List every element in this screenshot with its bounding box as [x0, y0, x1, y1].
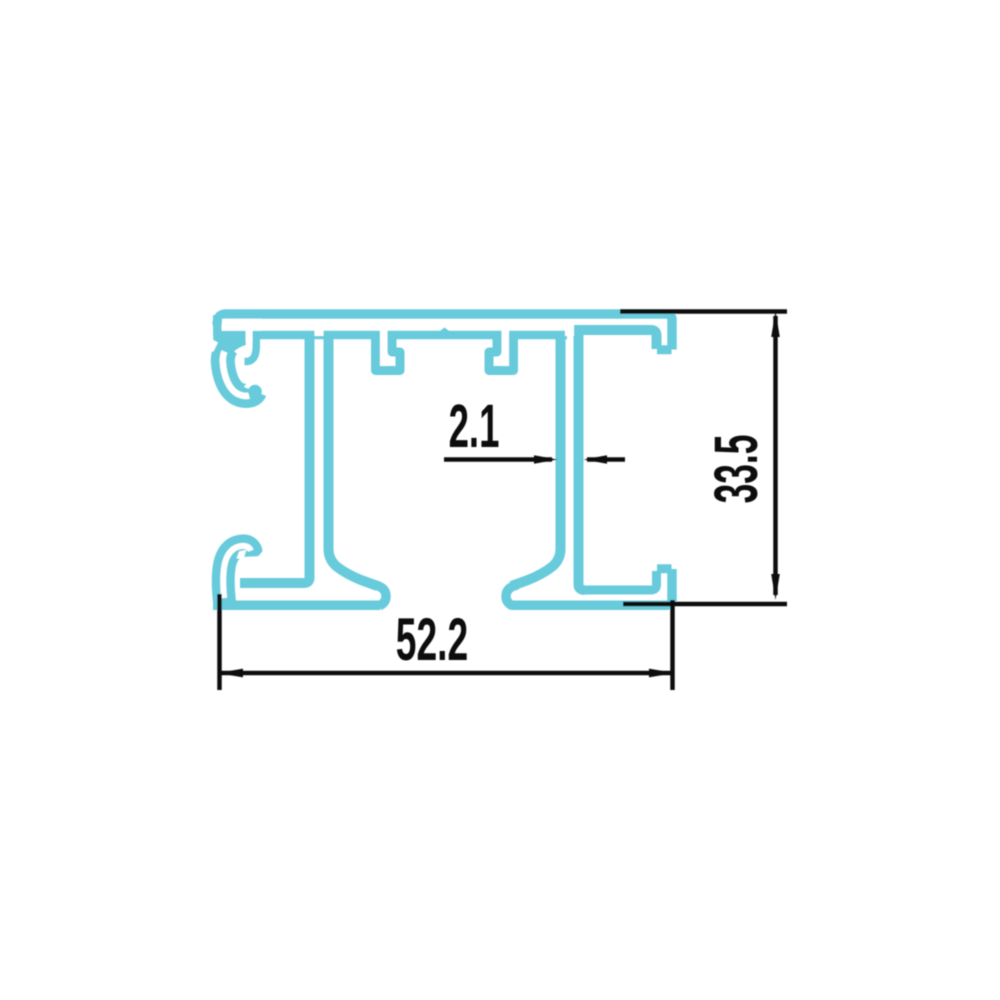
svg-text:2.1: 2.1 [449, 391, 500, 460]
svg-text:52.2: 52.2 [396, 606, 468, 673]
svg-text:33.5: 33.5 [702, 435, 771, 504]
